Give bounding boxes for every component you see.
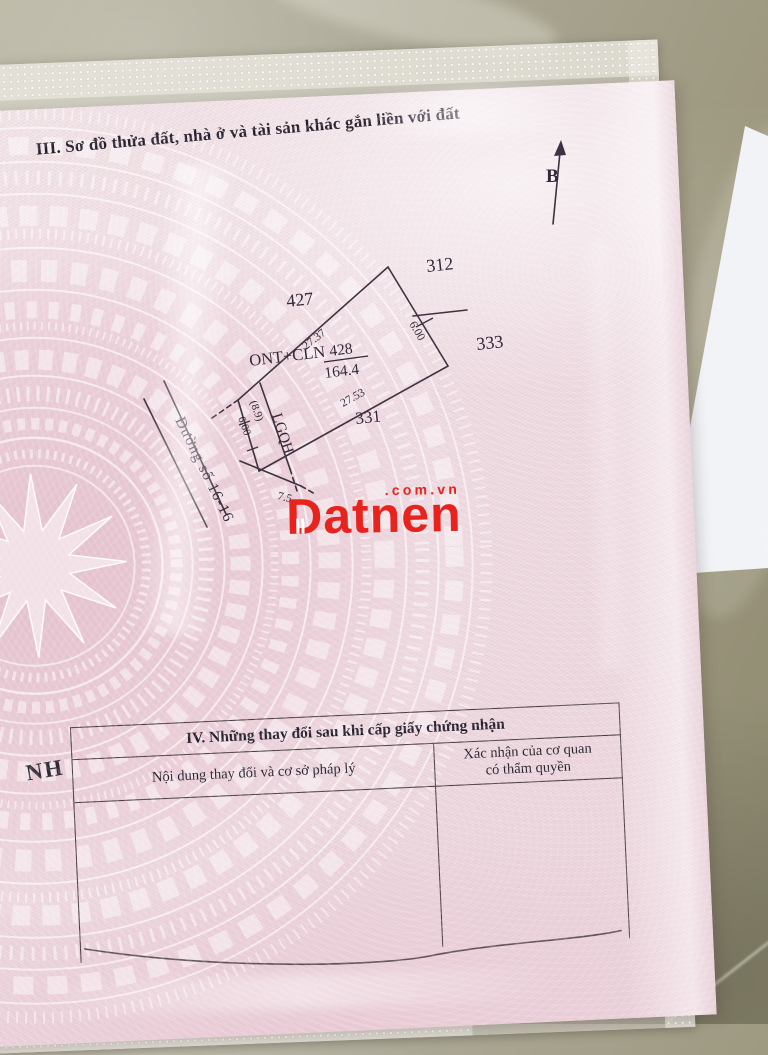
road-label: Đường số 16-16 (171, 414, 237, 525)
building-icon (296, 518, 307, 533)
photo-of-land-certificate: { "document": { "section3": { "title": "… (0, 0, 768, 1024)
north-arrow: B (546, 140, 566, 224)
parcel-number: 428 (328, 340, 353, 360)
dim-left-lower: 6.00 (235, 415, 253, 438)
neighbor-plot-312: 312 (425, 253, 454, 276)
neighbor-plot-427: 427 (285, 288, 314, 311)
watermark-brand: Datnen (286, 489, 462, 542)
boundary-dashed-extension (212, 400, 238, 418)
neighbor-plot-333: 333 (475, 331, 504, 354)
neighbor-boundary-line (413, 310, 467, 316)
planning-boundary-label: LGQH (268, 411, 296, 456)
north-label: B (546, 166, 559, 187)
neighbor-plot-331: 331 (354, 406, 381, 428)
dim-bottom-edge: 27.53 (339, 386, 368, 409)
parcel-area: 164.4 (323, 361, 360, 382)
dim-left-upper: (8.9) (247, 399, 266, 423)
datnen-watermark: .com.vn Datnen (285, 466, 496, 548)
parcel-right-edge (388, 267, 448, 366)
parcel-bottom-edge (259, 366, 448, 471)
